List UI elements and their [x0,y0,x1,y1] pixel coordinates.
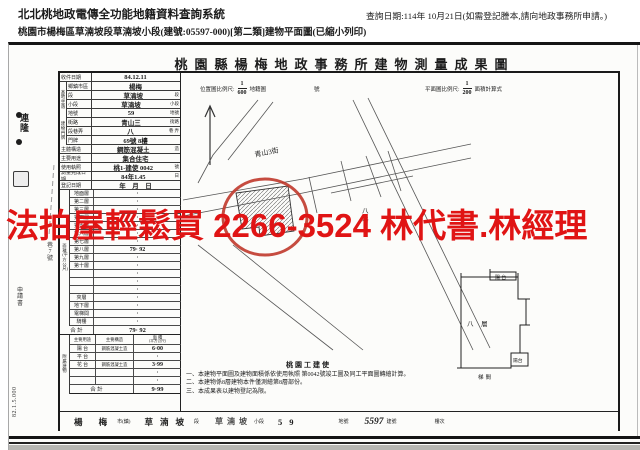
floor-row: 電梯間 · [60,310,181,318]
margin-square-stamp [13,171,29,187]
bottom-strip-item: 草湳坡 [144,416,191,428]
document-subtitle: 桃園市楊梅區草湳坡段草湳坡小段(建號:05597-000)[第二類]建物平面圖(… [18,24,366,38]
info-row-label: 測量完成日期 [60,172,92,180]
annex-row: 陽 台 鋼筋混凝土造 6·00 [60,345,181,353]
floor-row-area: · [94,310,181,317]
info-row-value: 八 [92,127,169,135]
info-row-value: 84年1.45 [92,172,175,180]
query-date: 查詢日期:114年 10月21日(如需登記謄本,請向地政事務所申請。) [366,9,607,22]
info-rows: 收件日期 84.12.11 鄉鎮市區 楊梅 段 草湳坡 段 小段 [60,73,180,190]
north-arrow-icon [205,106,215,165]
floor-row: · [60,286,181,294]
annex-row-structure [96,377,134,384]
bottom-strip-item: 建號 [387,418,397,425]
floor-row-area: · [94,190,181,197]
floor-row-label: 夾層 [70,294,94,301]
floorplan-outline [457,269,530,368]
floor-row-label [70,286,94,293]
info-row-value: 草湳坡 [92,91,175,99]
info-row-label: 主要用途 [60,154,92,162]
floor-row-label: 騎樓 [70,318,94,325]
note-line: 二、本建物係8層建物本件僅測繪第8層部份。 [186,379,486,388]
info-row: 鄉鎮市區 楊梅 [60,82,180,91]
floor-row-area: · [94,278,181,285]
floor-row-label: 第八層 [70,246,94,253]
info-row: 門牌 69號 8樓 [60,136,180,145]
page-bottom-line-2 [9,442,640,444]
annex-header-structure: 主要構造 [96,335,134,344]
floor-total-label: 合 計 [60,326,94,334]
floor-row-label: 電梯間 [70,310,94,317]
binder-dot [16,139,22,145]
floor-row-label: 第九層 [70,254,94,261]
floor-row: 第十層 · [60,262,181,270]
annex-row-structure [96,369,134,376]
annex-row-structure: 鋼筋混凝土造 [96,361,134,368]
info-row-unit [179,181,180,189]
floor-row: 地下層 · [60,302,181,310]
system-title: 北北桃地政電傳全功能地籍資料查詢系統 [18,6,225,22]
license-prefix: 桃園工建使 [286,361,486,370]
form-print-code: 82.1.5.000 [12,387,18,418]
info-row-label: 收件日期 [60,73,92,81]
info-row-unit [179,154,180,162]
info-row-unit [179,73,180,81]
info-row-value: 84.12.11 [92,73,179,81]
info-row: 小段 草湳坡 小段 [60,100,180,109]
info-row-value: 草湳坡 [92,100,170,108]
bottom-strip-item: 5597 [365,417,384,427]
info-row-value: 69號 8樓 [92,136,179,144]
info-row-unit [179,82,180,90]
annex-rows: 陽 台 鋼筋混凝土造 6·00 平 台 · 花 台 鋼筋混凝土造 3·99 [60,345,181,385]
screen: 北北桃地政電傳全功能地籍資料查詢系統 查詢日期:114年 10月21日(如需登記… [0,0,640,450]
application-word: 申請書 [17,288,23,307]
street-label: 青山3街 [254,145,280,159]
broker-watermark: 法拍屋輕鬆買 2266-3524 林代書.林經理 [6,199,587,247]
annex-row: · [60,377,181,385]
floor-row: 夾層 · [60,294,181,302]
floor-row: · [60,278,181,286]
annex-total-value: 9·99 [134,385,181,393]
info-row-unit: 段 [175,91,181,99]
balcony-bottom-label: 陽台 [513,357,523,364]
annex-row-structure [96,353,134,360]
floor-row: 第八層 79· 92 [60,246,181,254]
floor-row: 第九層 · [60,254,181,262]
annex-row-area: · [134,353,181,360]
annex-row: · [60,369,181,377]
group-label-doorplate: 建物門牌 [60,118,67,145]
bottom-strip-items: 楊 梅市(鎮)草湳坡段草湳坡小段59地號5597建號樓次 [60,416,618,428]
note-line: 一、本建物平面圖及建物面積係依使用執照 第0042號竣工圖及同工平面圖轉繪計算。 [186,371,486,380]
info-row-unit: 小段 [170,100,180,108]
annex-total-label: 合 計 [60,385,134,393]
info-row: 街路 青山三 街路 [60,118,180,127]
bottom-strip-item: 59 [278,417,301,427]
info-row-value: 鋼筋混凝土 [92,145,175,153]
floor-row-label: 地面層 [70,190,94,197]
annex-row-use: 花 台 [70,361,96,368]
info-row-unit: 號 [175,163,181,171]
annex-row-use: 平 台 [70,353,96,360]
info-row: 主體構造 鋼筋混凝土 造 [60,145,180,154]
floor-row-area: · [94,270,181,277]
balcony-top-label: 陽 台 [495,274,506,281]
floor-row: · [60,270,181,278]
annex-row-use [70,377,96,384]
info-row: 測量完成日期 84年1.45 日 [60,172,180,181]
page-bottom-line [9,436,640,439]
annex-row-area: 6·00 [134,345,181,352]
annex-row-area: · [134,369,181,376]
info-row: 使用執照 桃1-建使 0042 號 [60,163,180,172]
note-line: 三、本成果表以建物登記為限。 [186,388,486,397]
info-row: 段巷弄 八 巷 弄 [60,127,180,136]
floor-row-label [70,270,94,277]
info-row-unit [179,136,180,144]
name-stamp: 連隆 [20,114,29,133]
floor-row-area: · [94,254,181,261]
page-edge-line [637,45,638,437]
bottom-strip-item: 市(鎮) [117,418,130,425]
floor-row-label: 地下層 [70,302,94,309]
info-row: 地號 59 地號 [60,109,180,118]
annex-side-label: 附屬建物 [60,335,70,394]
floor-row: 騎樓 · [60,318,181,326]
annex-header-row: 主要用途 主要構造 面 積 (平方公尺) [60,335,181,345]
info-row-unit: 街路 [170,118,180,126]
info-row-label: 使用執照 [60,163,92,171]
floor-row-label [70,278,94,285]
annex-header-area: 面 積 (平方公尺) [134,335,181,344]
annex-row-area: 3·99 [134,361,181,368]
floor-row-area: · [94,262,181,269]
annex-row-structure: 鋼筋混凝土造 [96,345,134,352]
page-bottom-shadow [9,445,640,450]
bottom-strip-item: 草湳坡 [215,416,251,427]
floor-row-area: · [94,302,181,309]
annex-row-area: · [134,377,181,384]
bottom-strip-item: 樓次 [435,418,445,425]
info-row: 段 草湳坡 段 [60,91,180,100]
bottom-strip-item: 小段 [254,418,264,425]
floor-row: 地面層 · [60,190,181,198]
bottom-strip-item: 段 [194,418,199,425]
bottom-strip-item: 地號 [339,418,349,425]
note-lines: 一、本建物平面圖及建物面積係依使用執照 第0042號竣工圖及同工平面圖轉繪計算。… [186,371,486,397]
annex-row-use: 陽 台 [70,345,96,352]
info-row-value: 青山三 [92,118,170,126]
info-row-unit: 地號 [170,109,180,117]
annex-table: 主要用途 主要構造 面 積 (平方公尺) 陽 台 鋼筋混凝土造 6·00 [60,335,181,385]
floor-number-label: 八 層 [467,320,491,328]
floor-row-area: · [94,286,181,293]
info-row-value: 集合住宅 [92,154,179,162]
info-row-unit: 日 [175,172,181,180]
info-row-value: 楊梅 [92,82,179,90]
annex-row: 平 台 · [60,353,181,361]
info-row: 主要用途 集合住宅 [60,154,180,163]
info-row-value: 年 月 日 [92,181,179,189]
info-row-label: 登記日期 [60,181,92,189]
info-row-unit: 巷 弄 [169,127,180,135]
usage-license-notes: 桃園工建使 一、本建物平面圖及建物面積係依使用執照 第0042號竣工圖及同工平面… [186,361,486,396]
bottom-location-strip: 楊 梅市(鎮)草湳坡段草湳坡小段59地號5597建號樓次 [60,411,618,431]
info-row-label: 主體構造 [60,145,92,153]
info-row-unit: 造 [175,145,181,153]
annex-row-use [70,369,96,376]
floor-total-row: 合 計 79· 92 [60,326,181,335]
floor-row-area: · [94,318,181,325]
floor-total-value: 79· 92 [94,326,181,334]
annex-row: 花 台 鋼筋混凝土造 3·99 [60,361,181,369]
bottom-strip-item: 楊 梅 [74,416,114,428]
floor-row-label: 第十層 [70,262,94,269]
group-label-site: 基地坐落 [60,82,67,118]
annex-total-row: 合 計 9·99 [60,385,181,394]
floor-row-area: 79· 92 [94,246,181,253]
floor-row-area: · [94,294,181,301]
info-row-value: 桃1-建使 0042 [92,163,175,171]
info-row-value: 59 [92,109,170,117]
survey-form-border: 位置圖比例尺: 1 600 地籍圖 號 平面圖比例尺: 1 200 面積計算式 [58,71,620,431]
info-row: 收件日期 84.12.11 [60,73,180,82]
annex-header-use: 主要用途 [70,335,96,344]
info-row: 登記日期 年 月 日 [60,181,180,190]
